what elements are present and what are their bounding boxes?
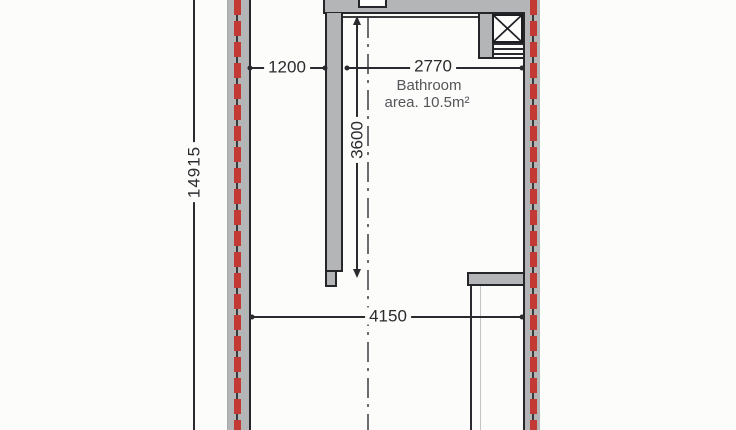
bathroom-wall-jamb xyxy=(325,272,337,287)
stub-wall xyxy=(467,272,523,286)
centerline-axis xyxy=(367,18,369,430)
partition-line xyxy=(470,286,472,430)
shaft-wall xyxy=(478,14,492,59)
dim-endpoint-dot xyxy=(248,66,253,71)
dim-bathroom-width-label: 2770 xyxy=(410,58,456,75)
dim-opening-width-label: 1200 xyxy=(264,59,310,76)
dim-endpoint-dot xyxy=(520,315,525,320)
room-name-label: Bathroom xyxy=(396,78,461,95)
insulation-dashes-left-icon xyxy=(234,0,241,430)
dim-endpoint-dot xyxy=(520,66,525,71)
dim-arrow-up-icon xyxy=(353,16,361,25)
dim-endpoint-dot xyxy=(250,315,255,320)
dim-overall-length-label: 14915 xyxy=(186,142,203,202)
shaft-cross-icon xyxy=(494,16,521,41)
top-wall xyxy=(323,0,525,14)
bathroom-partition-wall xyxy=(325,13,343,272)
top-wall-opening xyxy=(358,0,387,8)
ventilation-shaft-box xyxy=(492,14,523,43)
shaft-grille-icon xyxy=(492,43,523,59)
dim-room-width-label: 4150 xyxy=(365,308,411,325)
dim-endpoint-dot xyxy=(323,66,328,71)
dim-arrow-down-icon xyxy=(353,269,361,278)
partition-line-faint xyxy=(480,286,481,430)
dim-overall-length-line xyxy=(193,0,195,430)
dim-bathroom-depth-label: 3600 xyxy=(349,117,366,163)
interior-face-line xyxy=(343,16,478,18)
room-area-label: area. 10.5m² xyxy=(384,95,469,112)
exterior-wall-left xyxy=(227,0,251,430)
insulation-dashes-right-icon xyxy=(530,0,537,430)
floor-plan: 14915 1200 2770 3600 xyxy=(0,0,736,430)
dim-endpoint-dot xyxy=(345,66,350,71)
exterior-wall-right xyxy=(523,0,540,430)
